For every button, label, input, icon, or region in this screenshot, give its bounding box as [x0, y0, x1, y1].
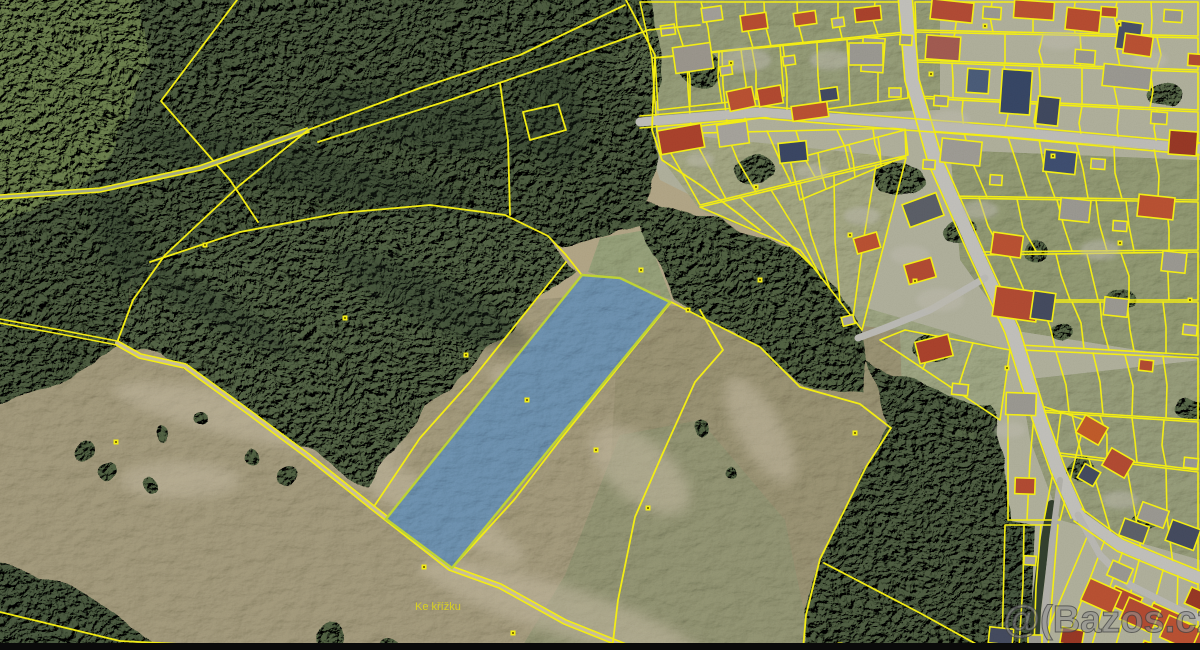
svg-text:@(Bazos.cz: @(Bazos.cz	[1003, 599, 1200, 641]
